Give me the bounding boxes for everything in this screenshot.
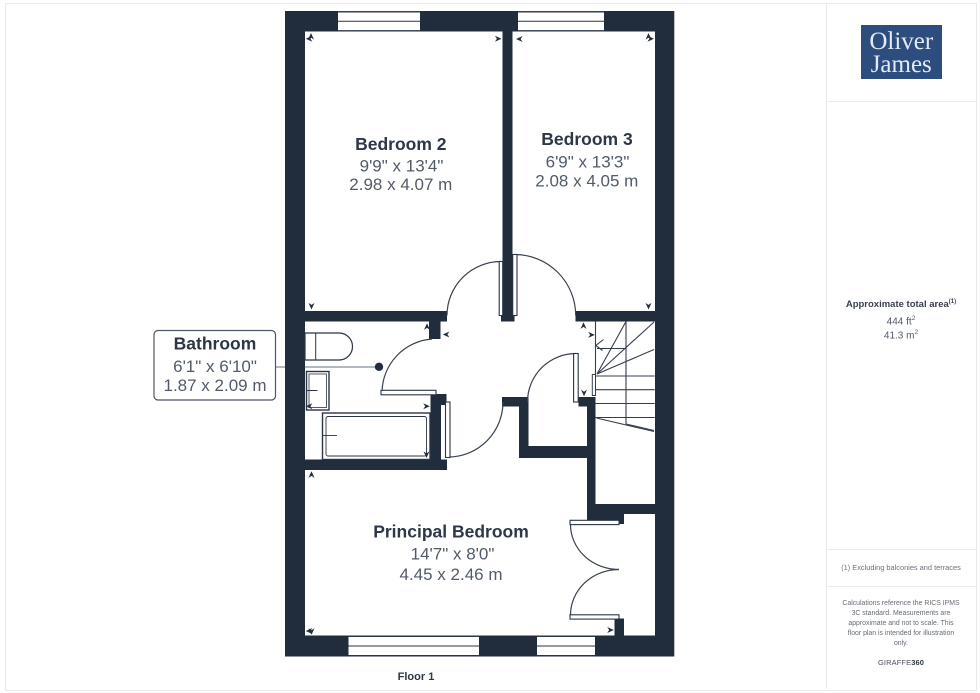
svg-text:9'9" x 13'4": 9'9" x 13'4" bbox=[360, 157, 444, 176]
svg-text:14'7" x 8'0": 14'7" x 8'0" bbox=[411, 545, 495, 564]
svg-text:2.08 x 4.05 m: 2.08 x 4.05 m bbox=[535, 172, 638, 191]
svg-text:6'9" x 13'3": 6'9" x 13'3" bbox=[546, 153, 630, 172]
svg-text:Principal Bedroom: Principal Bedroom bbox=[373, 522, 529, 542]
svg-text:Bedroom 2: Bedroom 2 bbox=[355, 134, 447, 154]
svg-text:Bathroom: Bathroom bbox=[174, 334, 257, 354]
svg-text:6'1" x 6'10": 6'1" x 6'10" bbox=[173, 357, 257, 376]
svg-text:1.87 x 2.09 m: 1.87 x 2.09 m bbox=[163, 376, 266, 395]
svg-text:4.45 x 2.46 m: 4.45 x 2.46 m bbox=[399, 565, 502, 584]
svg-text:Bedroom 3: Bedroom 3 bbox=[541, 129, 633, 149]
svg-text:2.98 x 4.07 m: 2.98 x 4.07 m bbox=[349, 175, 452, 194]
